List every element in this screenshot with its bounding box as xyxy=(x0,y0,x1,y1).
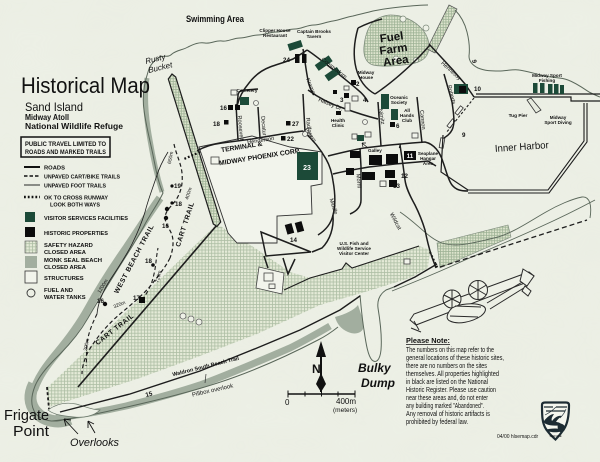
svg-text:Area: Area xyxy=(423,161,434,166)
svg-text:4: 4 xyxy=(363,97,367,104)
svg-text:The numbers on this map refer: The numbers on this map refer to the xyxy=(406,347,494,354)
svg-text:prohibited by federal law.: prohibited by federal law. xyxy=(406,419,468,426)
svg-text:Dump: Dump xyxy=(361,376,395,390)
svg-text:Cemetery: Cemetery xyxy=(237,88,258,93)
svg-text:400m: 400m xyxy=(336,397,356,406)
svg-text:Morril: Morril xyxy=(354,174,361,188)
svg-text:14: 14 xyxy=(290,237,297,244)
svg-text:Galley: Galley xyxy=(368,148,382,153)
svg-text:Society: Society xyxy=(391,100,408,105)
svg-text:13: 13 xyxy=(393,183,400,190)
svg-text:Bulky: Bulky xyxy=(358,361,392,375)
svg-text:N: N xyxy=(312,362,321,376)
svg-text:3: 3 xyxy=(340,97,344,104)
svg-text:CLOSED AREA: CLOSED AREA xyxy=(44,250,87,256)
svg-text:Restaurant: Restaurant xyxy=(263,33,287,38)
svg-text:near these areas and, do not e: near these areas and, do not enter xyxy=(406,395,489,402)
svg-text:17: 17 xyxy=(133,295,140,302)
svg-text:WATER TANKS: WATER TANKS xyxy=(44,295,86,301)
svg-text:themselves. All properties hi: themselves. All properties highlighted xyxy=(406,371,499,378)
svg-text:ROADS: ROADS xyxy=(44,166,65,172)
svg-text:18: 18 xyxy=(213,121,220,128)
svg-text:HISTORIC PROPERTIES: HISTORIC PROPERTIES xyxy=(44,231,108,237)
svg-text:OK TO CROSS RUNWAY: OK TO CROSS RUNWAY xyxy=(44,196,108,202)
svg-text:24: 24 xyxy=(283,57,290,64)
svg-text:Tug Pier: Tug Pier xyxy=(509,113,528,119)
svg-text:6: 6 xyxy=(396,123,400,130)
svg-text:18: 18 xyxy=(175,201,182,208)
svg-text:10: 10 xyxy=(474,86,481,93)
svg-text:7: 7 xyxy=(398,143,402,150)
svg-text:(meters): (meters) xyxy=(333,407,357,414)
svg-text:16: 16 xyxy=(97,298,104,305)
svg-text:Historic Register. Please use: Historic Register. Please use caution xyxy=(406,387,496,394)
svg-text:Frigate: Frigate xyxy=(4,407,49,424)
svg-text:9: 9 xyxy=(462,132,466,139)
svg-text:any building marked "Abandoned: any building marked "Abandoned". xyxy=(406,403,484,410)
svg-text:Club: Club xyxy=(402,118,412,123)
svg-text:CLOSED AREA: CLOSED AREA xyxy=(44,265,87,271)
svg-text:0: 0 xyxy=(285,398,290,407)
svg-text:Any removal of historic artifa: Any removal of historic artifacts is xyxy=(406,411,490,418)
svg-text:SAFETY HAZARD: SAFETY HAZARD xyxy=(44,243,93,249)
svg-text:2: 2 xyxy=(356,81,360,88)
svg-text:STRUCTURES: STRUCTURES xyxy=(44,276,84,282)
svg-text:Point: Point xyxy=(13,423,50,440)
svg-text:Fishing: Fishing xyxy=(539,78,556,83)
svg-text:27: 27 xyxy=(292,121,299,128)
svg-text:UNPAVED FOOT TRAILS: UNPAVED FOOT TRAILS xyxy=(44,184,106,190)
svg-text:19: 19 xyxy=(174,183,181,190)
svg-text:House: House xyxy=(359,75,373,80)
svg-text:National Wildlife Refuge: National Wildlife Refuge xyxy=(25,121,123,131)
svg-text:SERVICE: SERVICE xyxy=(549,434,561,438)
svg-text:12: 12 xyxy=(401,173,408,180)
svg-text:FUEL AND: FUEL AND xyxy=(44,288,73,294)
svg-text:Sport Diving: Sport Diving xyxy=(544,120,572,125)
svg-text:Overlooks: Overlooks xyxy=(70,437,119,449)
svg-text:Please Note:: Please Note: xyxy=(406,336,450,345)
svg-text:18: 18 xyxy=(145,258,152,265)
svg-text:Historical Map: Historical Map xyxy=(21,73,150,98)
svg-text:Visitor Center: Visitor Center xyxy=(339,251,369,256)
svg-text:LOOK BOTH WAYS: LOOK BOTH WAYS xyxy=(50,203,100,209)
svg-text:Clinic: Clinic xyxy=(332,123,345,128)
svg-text:PUBLIC TRAVEL LIMITED TO: PUBLIC TRAVEL LIMITED TO xyxy=(25,141,106,148)
svg-text:Swimming Area: Swimming Area xyxy=(186,14,245,24)
svg-text:in black are listed on the Nat: in black are listed on the National xyxy=(406,379,488,386)
svg-text:Tavern: Tavern xyxy=(307,34,322,39)
svg-text:16: 16 xyxy=(220,105,227,112)
svg-text:there are no numbers on the si: there are no numbers on the sites xyxy=(406,363,487,370)
svg-text:04/00 hlsemap.cdr: 04/00 hlsemap.cdr xyxy=(497,434,538,440)
svg-text:general locations of these his: general locations of these historic site… xyxy=(406,355,504,362)
svg-text:22: 22 xyxy=(287,136,294,143)
svg-text:UNPAVED CART/BIKE TRAILS: UNPAVED CART/BIKE TRAILS xyxy=(44,175,120,181)
svg-text:ROADS AND MARKED TRAILS: ROADS AND MARKED TRAILS xyxy=(25,149,106,156)
svg-text:11: 11 xyxy=(407,153,414,160)
svg-text:23: 23 xyxy=(303,165,311,172)
svg-text:MONK SEAL BEACH: MONK SEAL BEACH xyxy=(44,258,102,264)
svg-text:VISITOR SERVICES FACILITIES: VISITOR SERVICES FACILITIES xyxy=(44,216,128,222)
svg-text:16: 16 xyxy=(162,223,169,230)
